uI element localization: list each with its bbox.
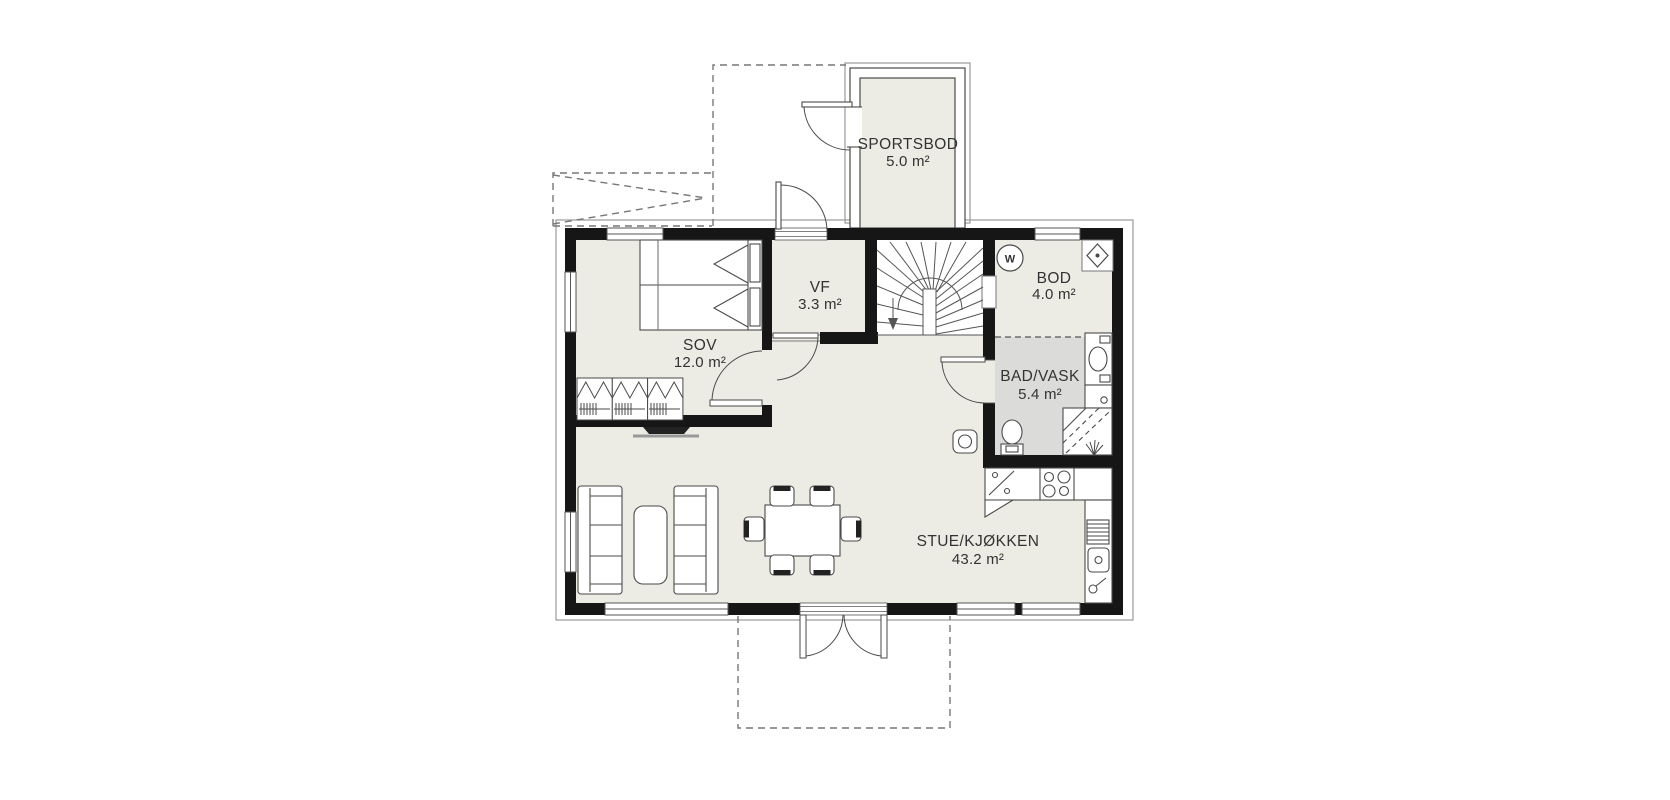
svg-text:VF: VF: [810, 279, 831, 296]
window: [565, 272, 576, 332]
dining-chair: [770, 486, 794, 506]
floor-plan: W: [0, 0, 1670, 800]
dining-table: [765, 505, 840, 556]
wardrobe-unit: [612, 378, 647, 420]
svg-text:4.0 m²: 4.0 m²: [1032, 286, 1076, 303]
dining-chair: [744, 517, 764, 541]
bod-door: [982, 276, 996, 308]
svg-text:SPORTSBOD: SPORTSBOD: [858, 136, 959, 153]
floor-plan-page: W: [0, 0, 1670, 800]
coffee-table: [634, 506, 667, 584]
vent-icon: [1082, 240, 1113, 271]
window: [607, 228, 663, 240]
room-label-bod: BOD 4.0 m²: [1032, 270, 1076, 303]
pillow: [750, 244, 760, 282]
dining-chair: [810, 486, 834, 506]
toilet: [1001, 420, 1023, 455]
pillow: [750, 288, 760, 326]
dining-chair: [841, 517, 861, 541]
svg-text:43.2 m²: 43.2 m²: [952, 551, 1004, 568]
sofa-right: [674, 486, 718, 594]
svg-text:3.3 m²: 3.3 m²: [798, 296, 842, 313]
svg-text:12.0 m²: 12.0 m²: [674, 354, 726, 371]
sofa-left: [578, 486, 622, 594]
stove: [1040, 468, 1074, 500]
washing-machine: [1085, 385, 1112, 408]
wardrobes: [577, 378, 683, 420]
svg-text:BAD/VASK: BAD/VASK: [1000, 368, 1080, 385]
window: [605, 603, 728, 615]
shower: [1063, 408, 1112, 455]
svg-text:SOV: SOV: [683, 337, 717, 354]
svg-text:STUE/KJØKKEN: STUE/KJØKKEN: [917, 533, 1040, 550]
floor-drain-icon: [953, 430, 977, 453]
dining-chair: [810, 555, 834, 575]
svg-text:W: W: [1005, 254, 1016, 266]
window: [1035, 228, 1080, 240]
wardrobe-unit: [577, 378, 612, 420]
svg-text:5.0 m²: 5.0 m²: [886, 153, 930, 170]
wardrobe-unit: [648, 378, 683, 420]
svg-text:BOD: BOD: [1037, 270, 1072, 287]
window: [957, 603, 1015, 615]
bed: [640, 240, 762, 330]
window: [1022, 603, 1080, 615]
window: [565, 512, 576, 572]
water-heater-icon: W: [997, 245, 1023, 271]
dining-chair: [770, 555, 794, 575]
washbasin: [1085, 333, 1112, 385]
svg-text:5.4 m²: 5.4 m²: [1018, 386, 1062, 403]
